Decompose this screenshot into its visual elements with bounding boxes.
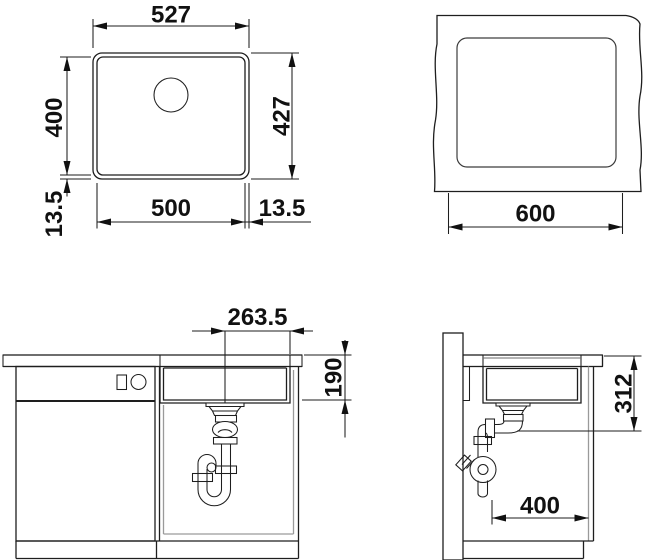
arrowhead [631,356,638,370]
countertop-hatch-left [3,355,160,367]
arrowhead [64,161,71,175]
dim-label-427: 427 [269,96,296,136]
arrowhead [449,224,463,231]
countertop-hatch-left [463,355,483,367]
basin-side [483,367,581,404]
strainer-flange [206,403,244,416]
left-cabinet [16,367,155,542]
siphon-side [456,403,530,497]
dim-inner-height: 400 [41,57,91,175]
dim-label-500: 500 [151,195,191,222]
arrowhead [97,219,111,226]
arrowhead [575,515,589,522]
side-section-view: 312 400 [443,333,642,560]
dim-bowl-depth: 190 [302,340,352,438]
pipe-end-cap [478,494,488,498]
dim-inner-width: 500 13.5 [97,183,311,229]
cutout-outline [457,38,616,167]
dim-trap-clearance: 400 [492,493,589,525]
wall-section [443,333,463,560]
dim-outer-width: 527 [93,2,249,49]
down-pipe [478,425,488,458]
plan-view: 527 400 13.5 427 [41,2,311,238]
arrowhead [492,515,506,522]
arrowhead [93,23,107,30]
dim-rim-left: 13.5 [41,179,91,237]
control-knob-icon [131,375,146,390]
cutout-view: 600 [433,16,641,235]
pipe-collar [216,466,237,474]
strainer-flange [496,403,530,415]
countertop-front [3,355,302,367]
arrowhead [290,328,304,335]
control-rect-icon [117,375,127,390]
technical-drawing-sheet: 527 400 13.5 427 [0,0,648,560]
dim-cabinet-width: 600 [449,193,623,234]
arrowhead [231,219,245,226]
dim-label-600: 600 [515,201,555,228]
arrowhead [609,224,623,231]
countertop-hatch-right [290,355,302,367]
arrowhead [289,53,296,67]
arrowhead [211,328,225,335]
sink-cabinet-front [16,367,299,559]
dim-drain-offset: 263.5 [192,304,313,403]
front-section-view: 263.5 190 [3,304,352,559]
cabinet-interior [164,370,294,534]
dim-label-527: 527 [151,2,191,29]
arrowhead [235,23,249,30]
trap-u-bend [198,490,231,506]
arrowhead [342,400,349,414]
sink-outer-outline [93,53,249,179]
dim-label-400-side: 400 [520,493,560,520]
sink-bowl-outline [97,57,245,175]
arrowhead [342,341,349,355]
arrowhead [289,165,296,179]
countertop-hatch-right [581,355,603,367]
pipe-collar [193,474,213,482]
siphon-front [193,403,245,506]
locknut [504,415,524,422]
dim-label-13-5-right: 13.5 [259,195,306,222]
dim-label-312: 312 [611,373,638,413]
countertop-side [463,355,603,367]
arrowhead [64,57,71,71]
pipe-collar [214,438,238,445]
wall-batten [463,367,470,401]
dim-outer-height: 427 [251,53,299,179]
dim-label-263-5: 263.5 [227,304,287,331]
arrowhead [631,417,638,431]
dim-label-190: 190 [321,357,348,397]
countertop-slab [433,16,641,192]
dim-label-400: 400 [41,97,68,137]
dim-label-13-5-left: 13.5 [41,191,68,238]
dim-outlet-height: 312 [517,356,642,431]
sink-dimension-drawing: 527 400 13.5 427 [0,0,648,560]
drain-hole [154,78,188,112]
